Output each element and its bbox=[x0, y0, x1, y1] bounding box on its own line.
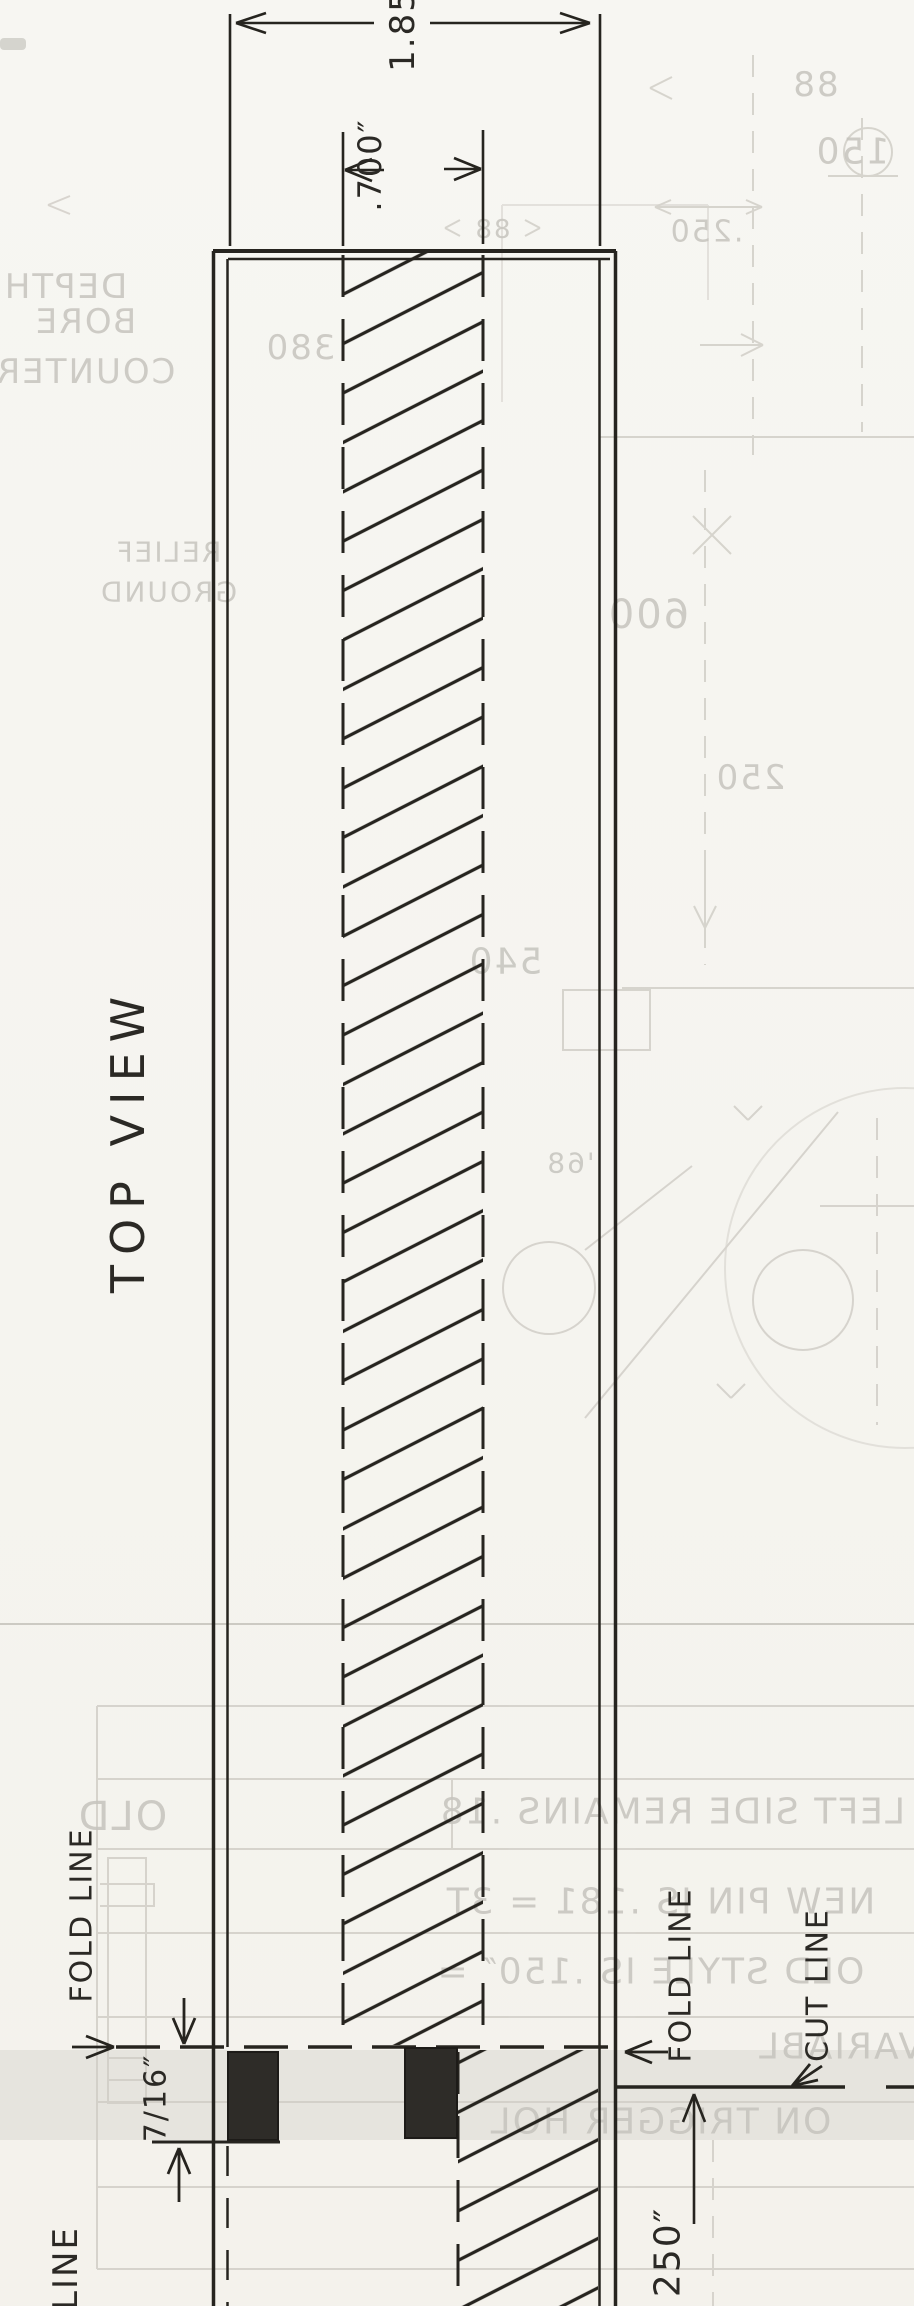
dim-label-edge-offset: 250″ bbox=[648, 2207, 689, 2297]
dim-label-slot-width: .700″ bbox=[351, 118, 389, 211]
fold-line-left-leader bbox=[72, 2036, 114, 2058]
cut-line-leader bbox=[792, 2064, 822, 2086]
scanned-drawing-page: DEPTH BORE COUNTER RELIEF GROUND 88 150 … bbox=[0, 0, 914, 2306]
dark-notch-left bbox=[228, 2052, 278, 2140]
fold-line-label-left: FOLD LINE bbox=[65, 1827, 100, 2002]
dark-notch-right bbox=[405, 2048, 457, 2138]
cut-line-label: CUT LINE bbox=[801, 1908, 836, 2062]
hatch-slot-upper bbox=[343, 252, 483, 2045]
dim-label-overall-width: 1.85 bbox=[383, 0, 423, 72]
view-title: TOP VIEW bbox=[101, 987, 155, 1293]
fold-line-right-leader bbox=[625, 2041, 668, 2063]
dim-edge-offset bbox=[683, 2094, 705, 2224]
dim-label-notch-depth: 7/16″ bbox=[139, 2054, 174, 2143]
hatch-slot-lower bbox=[458, 2050, 598, 2306]
partial-line-label: LINE bbox=[46, 2226, 86, 2306]
fold-line-label-right: FOLD LINE bbox=[664, 1887, 699, 2062]
